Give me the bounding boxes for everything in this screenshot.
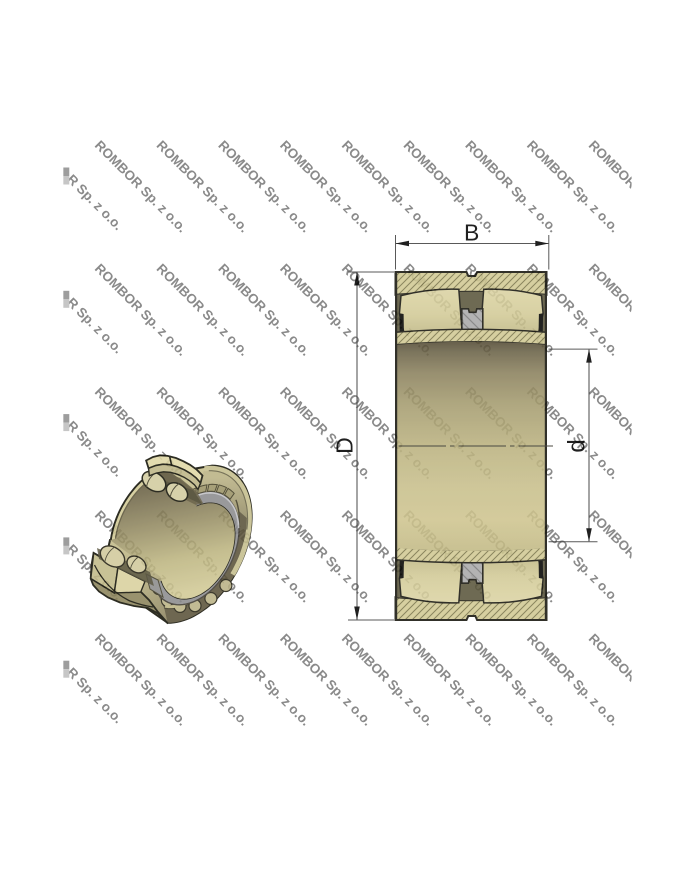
- svg-text:d: d: [564, 439, 591, 452]
- svg-text:D: D: [332, 437, 358, 454]
- svg-text:B: B: [464, 220, 479, 246]
